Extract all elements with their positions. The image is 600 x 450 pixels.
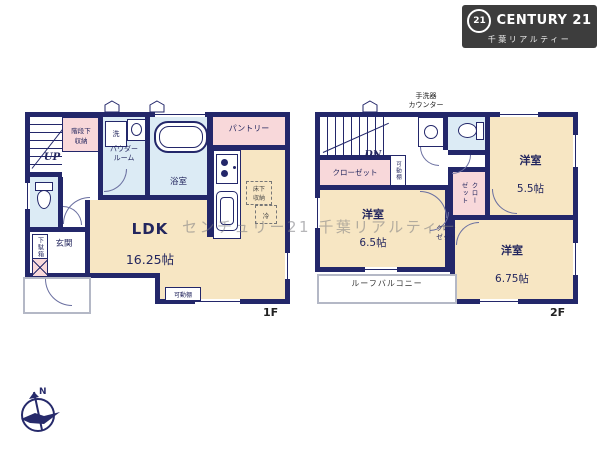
room55-name: 洋室: [488, 154, 573, 169]
toilet-bowl-icon: [458, 123, 477, 138]
stair-storage-label: 階段下 収納: [71, 125, 91, 145]
closet-side: クロー ゼット: [453, 172, 485, 215]
floor1-label: 1F: [263, 306, 278, 321]
ldk-size: 16.25帖: [95, 252, 205, 269]
entrance-label: 玄関: [44, 239, 84, 250]
handwash-basin-icon: [418, 117, 444, 147]
laundry-box: 洗: [105, 121, 127, 147]
room55-size: 5.5帖: [488, 182, 573, 196]
stove-icon: [216, 154, 238, 184]
room675-size: 6.75帖: [462, 272, 562, 286]
roof-balcony-label: ルーフバルコニー: [351, 278, 422, 289]
logo-row: 21 CENTURY 21: [467, 9, 591, 33]
balcony-door: [365, 267, 397, 272]
bathtub-icon: [154, 121, 208, 153]
vanity-sink-icon: [127, 119, 146, 141]
watermark-text: センチュリー21 千葉リアルティー: [182, 216, 457, 237]
stair-storage: 階段下 収納: [62, 117, 100, 152]
room675-name: 洋室: [462, 244, 562, 259]
window: [480, 299, 518, 304]
window: [573, 135, 578, 167]
toilet-tank-icon: [476, 122, 484, 140]
shelf-2f: 可動棚: [390, 155, 406, 187]
closet-hall: クローゼット: [320, 160, 390, 185]
wall: [98, 195, 207, 200]
shoe-cabinet-cross: [32, 258, 48, 277]
vent-icon: [104, 100, 120, 113]
pantry-label: パントリー: [213, 124, 285, 135]
underfloor-storage-label: 床下 収納: [253, 184, 265, 202]
logo-brand-text: CENTURY 21: [496, 13, 591, 28]
handwash-counter-label: 手洗器 カウンター: [394, 92, 458, 111]
laundry-label: 洗: [113, 129, 120, 139]
window: [573, 243, 578, 275]
wall: [448, 172, 453, 215]
window: [25, 183, 30, 209]
room675-label: 洋室 6.75帖: [462, 233, 562, 297]
shelf-1f-label: 可動棚: [174, 290, 192, 299]
vent-icon: [149, 100, 165, 113]
century21-badge-icon: 21: [467, 9, 491, 33]
wall: [320, 185, 450, 190]
compass-icon: N: [8, 382, 68, 442]
room65-size: 6.5帖: [328, 236, 418, 250]
shelf-2f-label: 可動棚: [394, 161, 402, 181]
vent-icon: [362, 100, 378, 113]
floorplan-canvas: 階段下 収納 下駄箱 洗 床下 収納 冷 可動棚 UP パウダー ルーム 浴室 …: [0, 0, 600, 450]
bathroom-label: 浴室: [150, 177, 207, 188]
floor2-label: 2F: [550, 306, 565, 321]
closet-hall-label: クローゼット: [333, 167, 378, 178]
underfloor-storage: 床下 収納: [246, 181, 272, 205]
window: [500, 112, 538, 117]
logo-subtitle: 千葉リアルティー: [488, 34, 571, 45]
wall: [30, 227, 90, 232]
room55-label: 洋室 5.5帖: [488, 143, 573, 207]
compass-north-label: N: [39, 387, 47, 397]
wall: [443, 117, 448, 150]
shelf-1f: 可動棚: [165, 287, 201, 301]
stairs-up-label: UP: [40, 151, 64, 165]
closet-side-label: クロー ゼット: [459, 182, 479, 205]
window: [195, 299, 240, 304]
century21-logo: 21 CENTURY 21 千葉リアルティー: [462, 5, 597, 48]
wall: [445, 215, 573, 220]
powder-room-label: パウダー ルーム: [99, 145, 149, 164]
window: [285, 253, 290, 279]
roof-balcony: ルーフバルコニー: [317, 274, 457, 304]
stairs-down-label: DN: [358, 149, 388, 162]
